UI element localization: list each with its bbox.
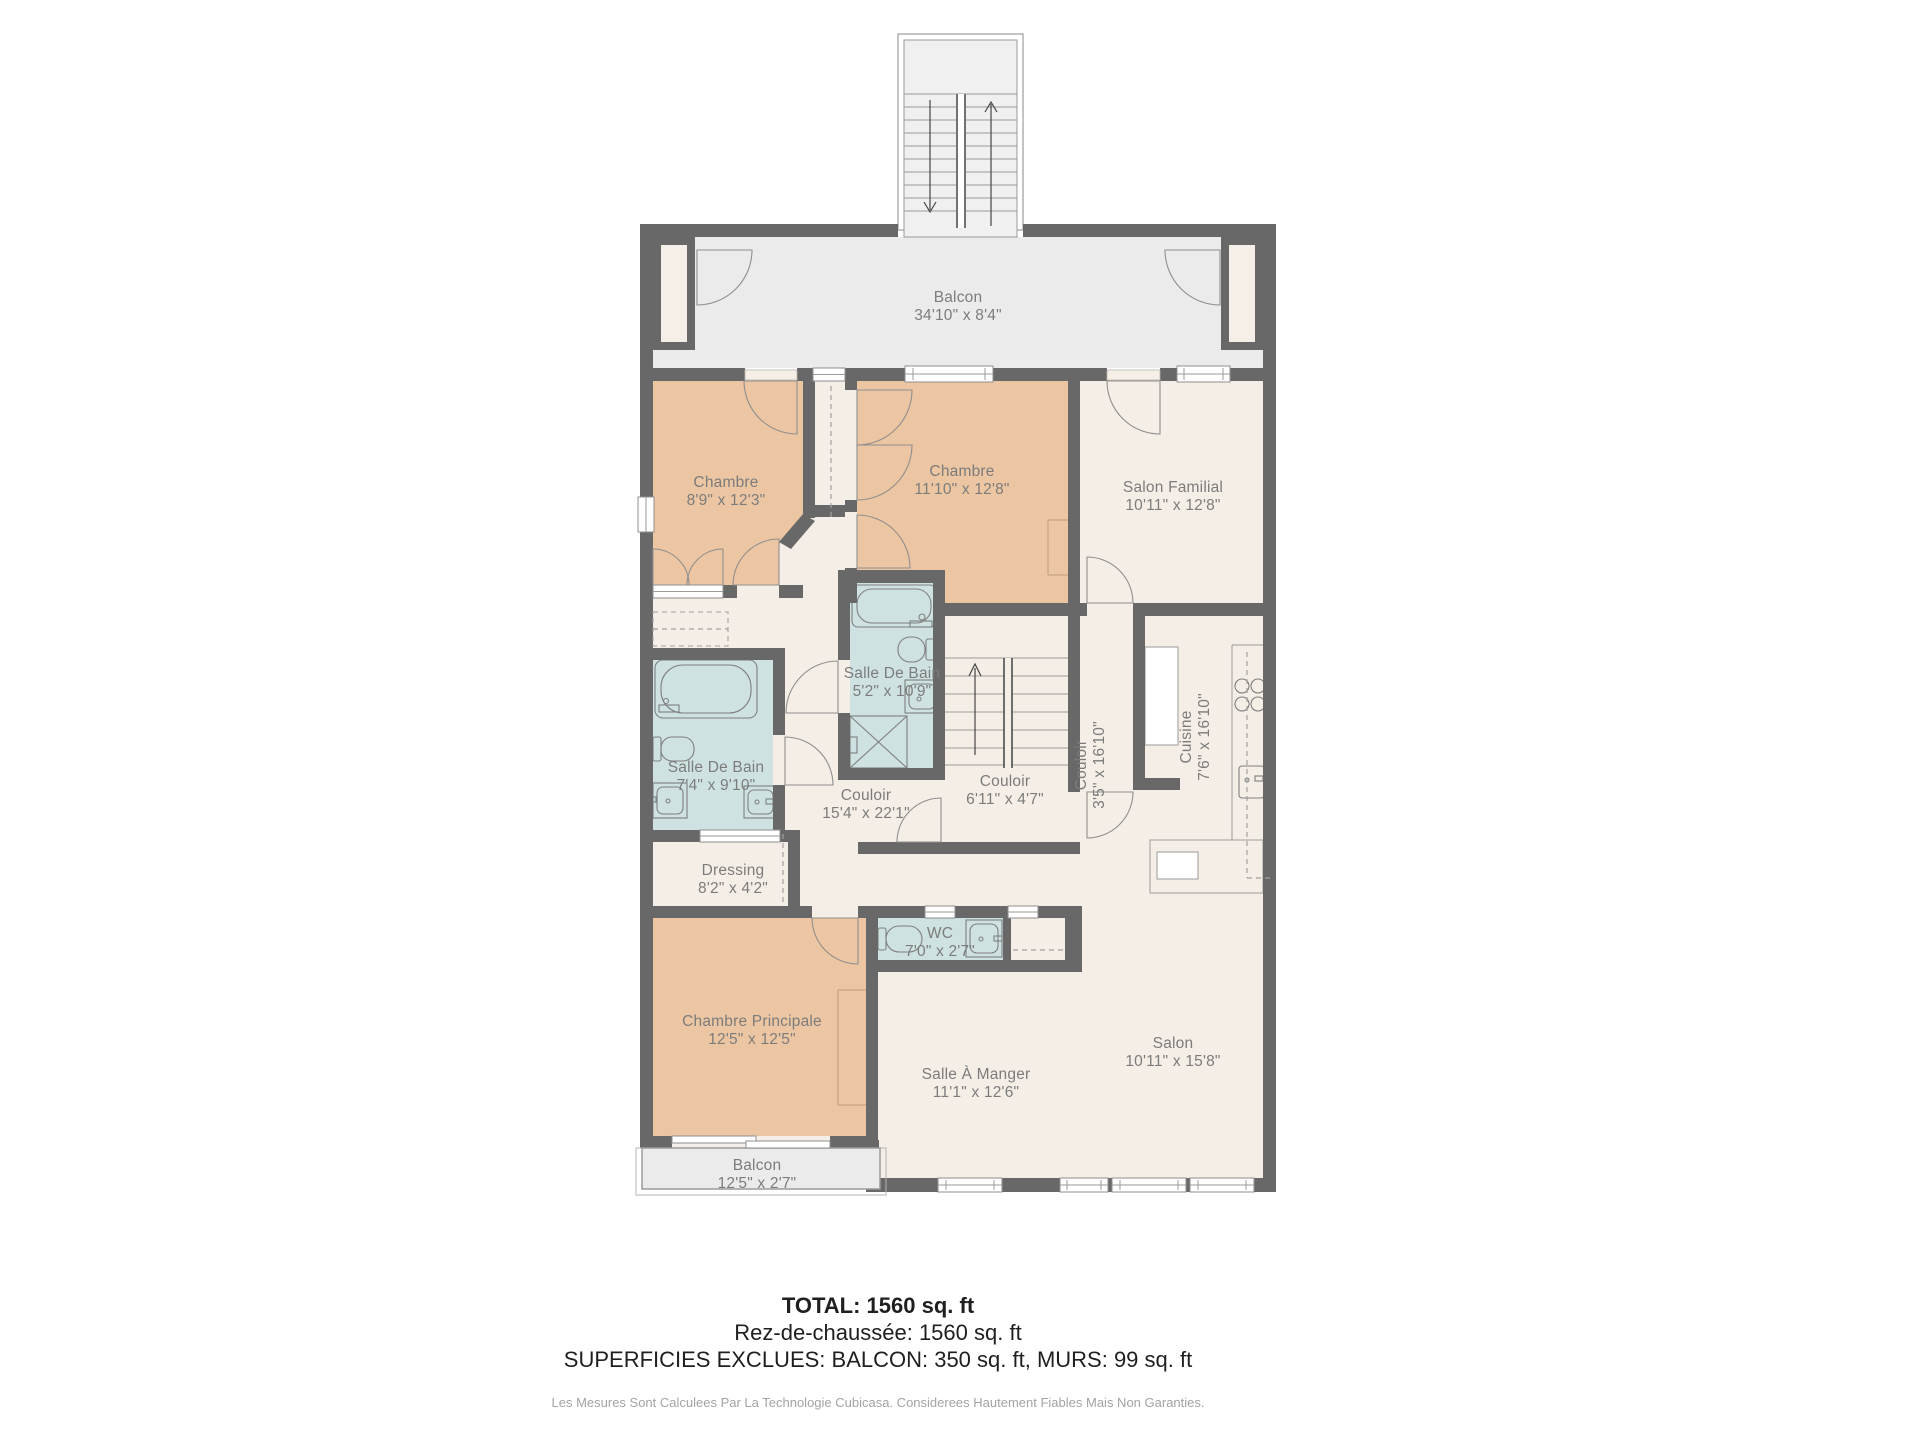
- window: [1190, 1178, 1254, 1192]
- label-couloir-vertical: Couloir: [1073, 740, 1090, 791]
- label-couloir-principal-dims: 15'4" x 22'1": [822, 805, 910, 822]
- label-chambre-gauche: Chambre: [693, 474, 758, 491]
- label-cuisine: Cuisine: [1178, 710, 1195, 763]
- floor-plan-drawing: Balcon 34'10" x 8'4" Chambre 8'9" x 12'3…: [0, 0, 1920, 1440]
- label-salon-familial: Salon Familial: [1123, 479, 1223, 496]
- label-chambre-principale: Chambre Principale: [682, 1013, 822, 1030]
- label-salle-de-bain-gauche-dims: 7'4" x 9'10": [677, 777, 756, 794]
- area-summary: TOTAL: 1560 sq. ft Rez-de-chaussée: 1560…: [0, 1292, 1756, 1410]
- label-salon-dims: 10'11" x 15'8": [1125, 1053, 1220, 1070]
- label-chambre-principale-dims: 12'5" x 12'5": [708, 1031, 796, 1048]
- label-balcon-bas-dims: 12'5" x 2'7": [718, 1175, 797, 1192]
- label-couloir-principal: Couloir: [841, 787, 892, 804]
- label-couloir-centre: Couloir: [980, 773, 1031, 790]
- floor-plan-page: Balcon 34'10" x 8'4" Chambre 8'9" x 12'3…: [0, 0, 1920, 1440]
- label-salle-a-manger: Salle À Manger: [922, 1066, 1031, 1083]
- label-wc-dims: 7'0" x 2'7": [905, 943, 975, 960]
- window: [1008, 906, 1038, 918]
- label-chambre-milieu-dims: 11'10" x 12'8": [914, 481, 1009, 498]
- window: [938, 1178, 1002, 1192]
- exterior-staircase: [898, 34, 1023, 237]
- window: [1177, 366, 1230, 382]
- floor-area-text: Rez-de-chaussée: 1560 sq. ft: [0, 1319, 1756, 1346]
- label-cuisine-dims: 7'6" x 16'10": [1196, 693, 1213, 781]
- window: [925, 906, 955, 918]
- label-balcon-top-dims: 34'10" x 8'4": [914, 307, 1002, 324]
- label-salle-de-bain-gauche: Salle De Bain: [668, 759, 765, 776]
- label-salon-familial-dims: 10'11" x 12'8": [1125, 497, 1220, 514]
- window: [905, 366, 993, 382]
- disclaimer-text: Les Mesures Sont Calculees Par La Techno…: [0, 1395, 1756, 1410]
- label-salle-a-manger-dims: 11'1" x 12'6": [933, 1084, 1019, 1101]
- window: [813, 368, 845, 381]
- label-dressing-dims: 8'2" x 4'2": [698, 880, 768, 897]
- label-balcon-top: Balcon: [934, 289, 983, 306]
- label-couloir-vertical-dims: 3'5" x 16'10": [1091, 721, 1108, 809]
- excluded-area-text: SUPERFICIES EXCLUES: BALCON: 350 sq. ft,…: [0, 1346, 1756, 1373]
- label-salle-de-bain-haut-dims: 5'2" x 10'9": [853, 683, 932, 700]
- window: [700, 830, 780, 842]
- label-balcon-bas: Balcon: [733, 1157, 782, 1174]
- room-salle-de-bain-gauche: [653, 660, 773, 830]
- label-wc: WC: [927, 925, 953, 942]
- window: [1112, 1178, 1186, 1192]
- label-couloir-centre-dims: 6'11" x 4'7": [966, 791, 1044, 808]
- window: [638, 497, 654, 532]
- label-chambre-milieu: Chambre: [929, 463, 994, 480]
- label-salle-de-bain-haut: Salle De Bain: [844, 665, 941, 682]
- kitchen-counter: [1145, 647, 1178, 745]
- window: [1060, 1178, 1108, 1192]
- label-dressing: Dressing: [702, 862, 765, 879]
- window: [653, 585, 723, 598]
- label-salon: Salon: [1153, 1035, 1194, 1052]
- label-chambre-gauche-dims: 8'9" x 12'3": [687, 492, 766, 509]
- total-area-text: TOTAL: 1560 sq. ft: [0, 1292, 1756, 1319]
